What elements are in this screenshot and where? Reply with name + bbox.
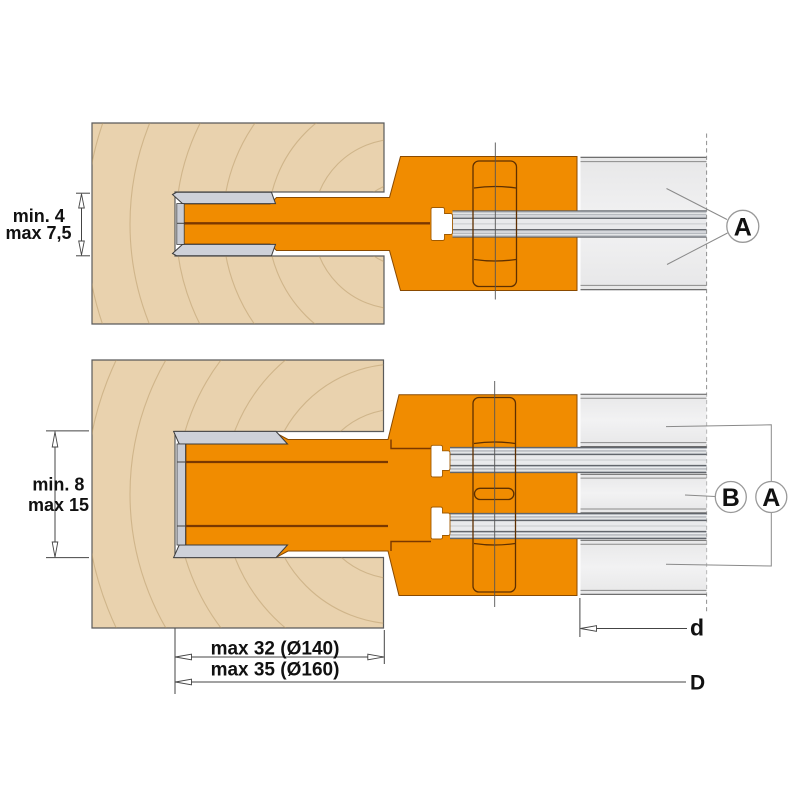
svg-text:d: d xyxy=(690,615,704,641)
svg-text:A: A xyxy=(734,213,752,241)
svg-text:max 35 (Ø160): max 35 (Ø160) xyxy=(211,660,340,681)
svg-text:max 32 (Ø140): max 32 (Ø140) xyxy=(211,639,340,660)
svg-text:min. 8: min. 8 xyxy=(32,475,84,495)
svg-text:D: D xyxy=(690,672,705,695)
svg-text:max 7,5: max 7,5 xyxy=(5,223,71,243)
svg-text:B: B xyxy=(722,484,740,512)
svg-text:A: A xyxy=(762,484,780,512)
svg-text:max 15: max 15 xyxy=(28,495,89,515)
